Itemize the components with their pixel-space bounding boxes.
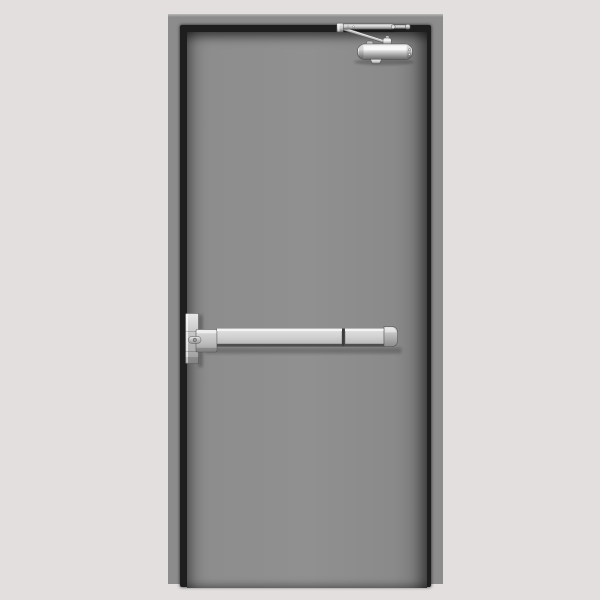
closer-arm-joint-screw	[391, 25, 395, 29]
rail-plate-bottom-shade	[186, 357, 199, 364]
push-bar-shadow	[204, 348, 402, 354]
push-bar-bottom-edge	[217, 344, 342, 347]
closer-slide-arm	[343, 24, 394, 29]
rail-plate-highlight	[186, 314, 188, 363]
closer-mount-tab	[371, 59, 382, 64]
chassis-bottom-shade	[196, 348, 216, 352]
closer-valve-screw	[408, 53, 410, 55]
push-bar-top-highlight	[217, 329, 342, 332]
closer-rod-end	[406, 24, 411, 29]
panic-exit-device: panic exit device (crash bar)	[178, 305, 408, 375]
closer-body-endband-right	[407, 45, 412, 58]
closer-shoe-highlight	[338, 24, 340, 31]
push-bar-main	[217, 329, 342, 347]
closer-body-highlight	[361, 46, 410, 50]
closer-arm-screw	[347, 26, 349, 28]
chassis-top-face	[196, 330, 216, 333]
latch-section-bottom-edge	[345, 344, 384, 347]
closer-arm-screw	[353, 26, 355, 28]
dogging-keyhole	[193, 338, 196, 341]
product-photo: overhead door closer	[0, 0, 600, 600]
closer-body-endband-left	[359, 45, 364, 58]
push-bar-divider	[342, 329, 345, 347]
closer-adjust-rod	[394, 25, 407, 29]
push-bar-latch-section	[345, 329, 384, 347]
door-closer: overhead door closer	[330, 14, 420, 69]
latch-section-top-highlight	[345, 329, 384, 332]
closer-valve-screw	[408, 49, 410, 51]
